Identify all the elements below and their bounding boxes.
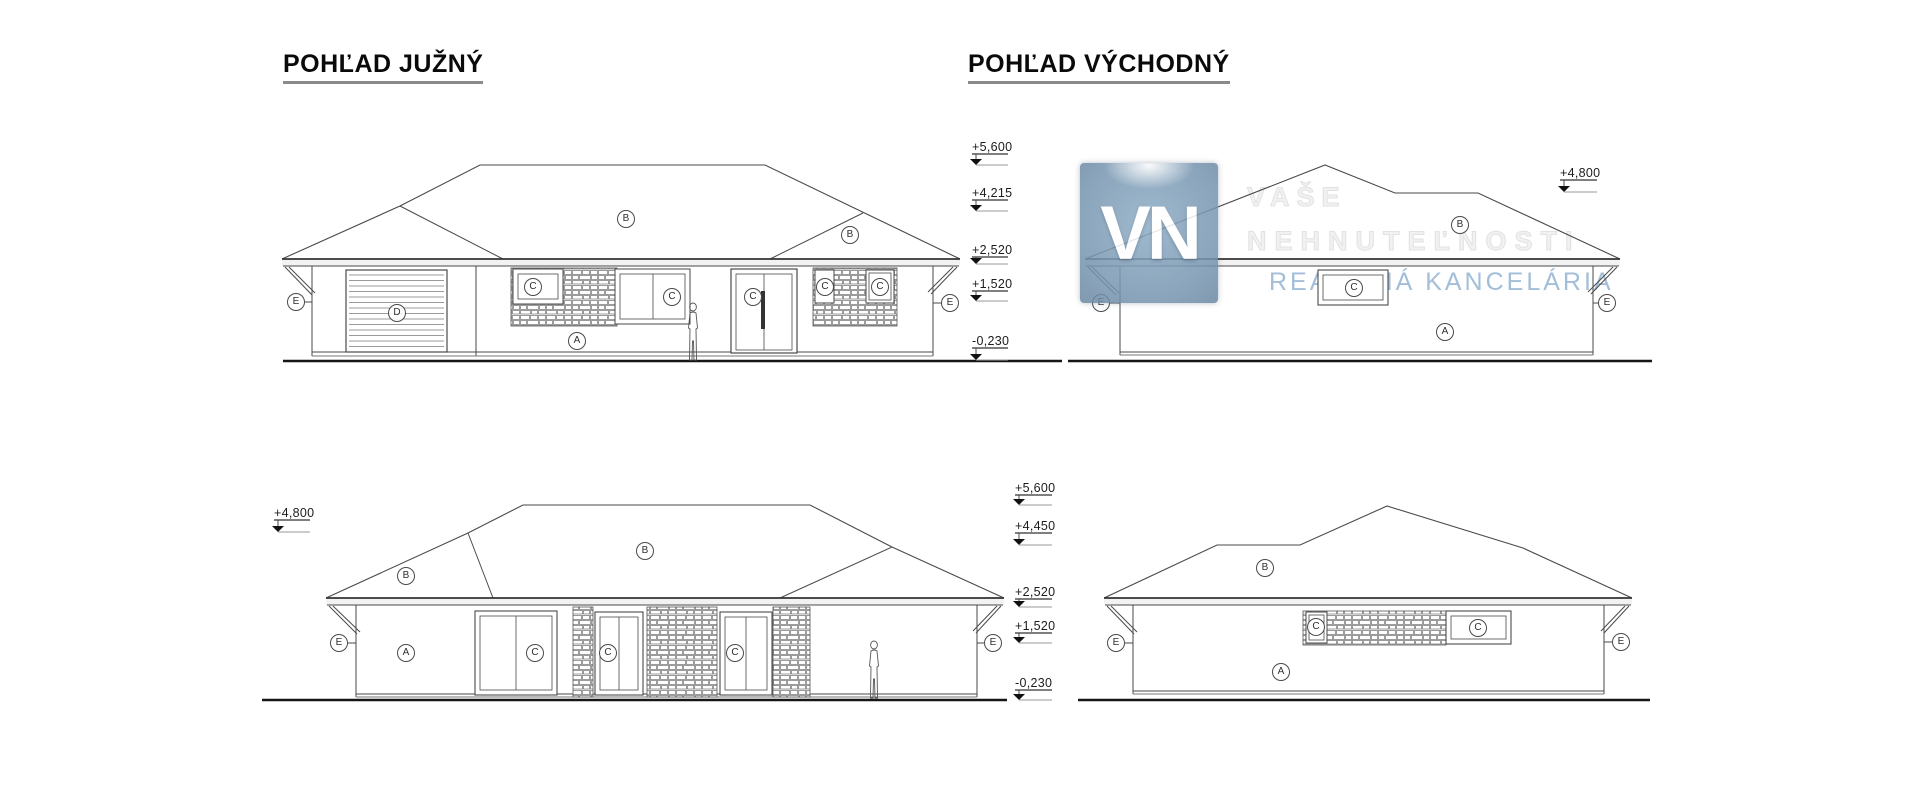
label-bubble-e: E (287, 293, 305, 311)
label-bubble-c: C (1345, 279, 1363, 297)
west-elevation-drawing (1078, 506, 1650, 700)
title-east-view: POHĽAD VÝCHODNÝ (968, 50, 1230, 84)
elevation-marker-value: +2,520 (972, 243, 1012, 257)
elevation-marker-value: +4,800 (1560, 166, 1600, 180)
person-figure (870, 641, 879, 698)
label-bubble-b: B (636, 542, 654, 560)
label-bubble-e: E (1107, 634, 1125, 652)
label-bubble-c: C (526, 644, 544, 662)
south-elevation-markers (970, 154, 1008, 360)
label-bubble-e: E (330, 634, 348, 652)
label-bubble-c: C (663, 288, 681, 306)
vn-logo-text: VN (1100, 190, 1198, 277)
label-bubble-b: B (1256, 559, 1274, 577)
elevation-marker-value: +4,800 (274, 506, 314, 520)
drawing-sheet: VAŠE NEHNUTEĽNOSTI REALITNÁ KANCELÁRIA (0, 0, 1920, 800)
label-bubble-c: C (1307, 618, 1325, 636)
label-bubble-c: C (1469, 619, 1487, 637)
north-stone-strip-1 (573, 607, 593, 697)
label-bubble-d: D (388, 304, 406, 322)
elevation-marker-value: +1,520 (972, 277, 1012, 291)
label-bubble-c: C (744, 288, 762, 306)
label-bubble-a: A (1436, 323, 1454, 341)
elevation-marker-value: +4,215 (972, 186, 1012, 200)
south-elevation-drawing (282, 154, 1062, 361)
vn-realty-logo: VN (1080, 163, 1218, 303)
elevation-marker-value: +4,450 (1015, 519, 1055, 533)
label-bubble-e: E (1612, 633, 1630, 651)
elevation-marker-value: +5,600 (972, 140, 1012, 154)
label-bubble-b: B (617, 210, 635, 228)
elevation-marker-value: +2,520 (1015, 585, 1055, 599)
label-bubble-b: B (397, 567, 415, 585)
label-bubble-b: B (841, 226, 859, 244)
elevation-marker-value: +5,600 (1015, 481, 1055, 495)
elevation-marker-value: -0,230 (1015, 676, 1052, 690)
title-south-view: POHĽAD JUŽNÝ (283, 50, 483, 84)
elevation-linework (0, 0, 1920, 800)
north-window-1 (475, 611, 557, 695)
label-bubble-a: A (397, 644, 415, 662)
label-bubble-c: C (816, 278, 834, 296)
label-bubble-c: C (524, 278, 542, 296)
north-stone-strip-2 (647, 607, 717, 697)
label-bubble-e: E (1598, 294, 1616, 312)
elevation-marker-value: -0,230 (972, 334, 1009, 348)
label-bubble-c: C (871, 278, 889, 296)
north-stone-strip-3 (773, 607, 810, 697)
label-bubble-e: E (941, 294, 959, 312)
label-bubble-b: B (1451, 216, 1469, 234)
label-bubble-e: E (984, 634, 1002, 652)
label-bubble-a: A (568, 332, 586, 350)
east-elevation-marker (1558, 180, 1597, 192)
label-bubble-c: C (726, 644, 744, 662)
south-entrance-door (731, 269, 797, 353)
label-bubble-a: A (1272, 663, 1290, 681)
north-elevation-drawing (262, 495, 1052, 700)
label-bubble-c: C (599, 644, 617, 662)
elevation-marker-value: +1,520 (1015, 619, 1055, 633)
